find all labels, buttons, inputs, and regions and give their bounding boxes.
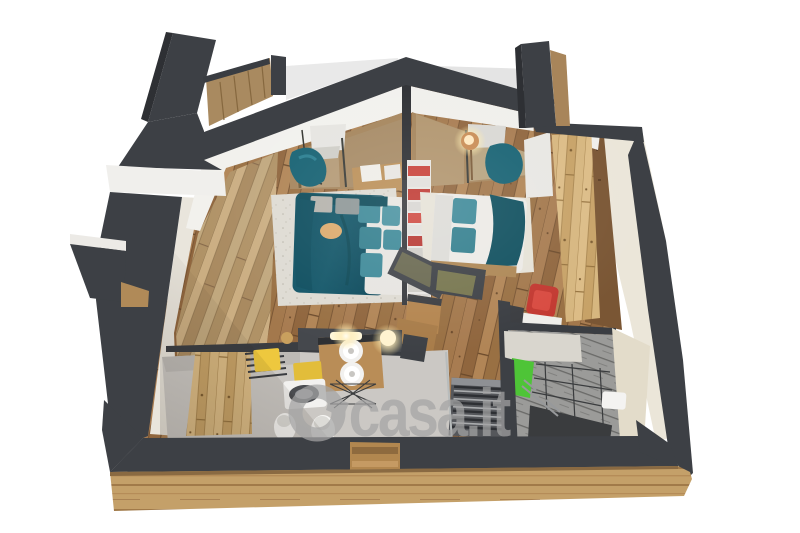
svg-text:casa.it: casa.it [349, 375, 512, 451]
